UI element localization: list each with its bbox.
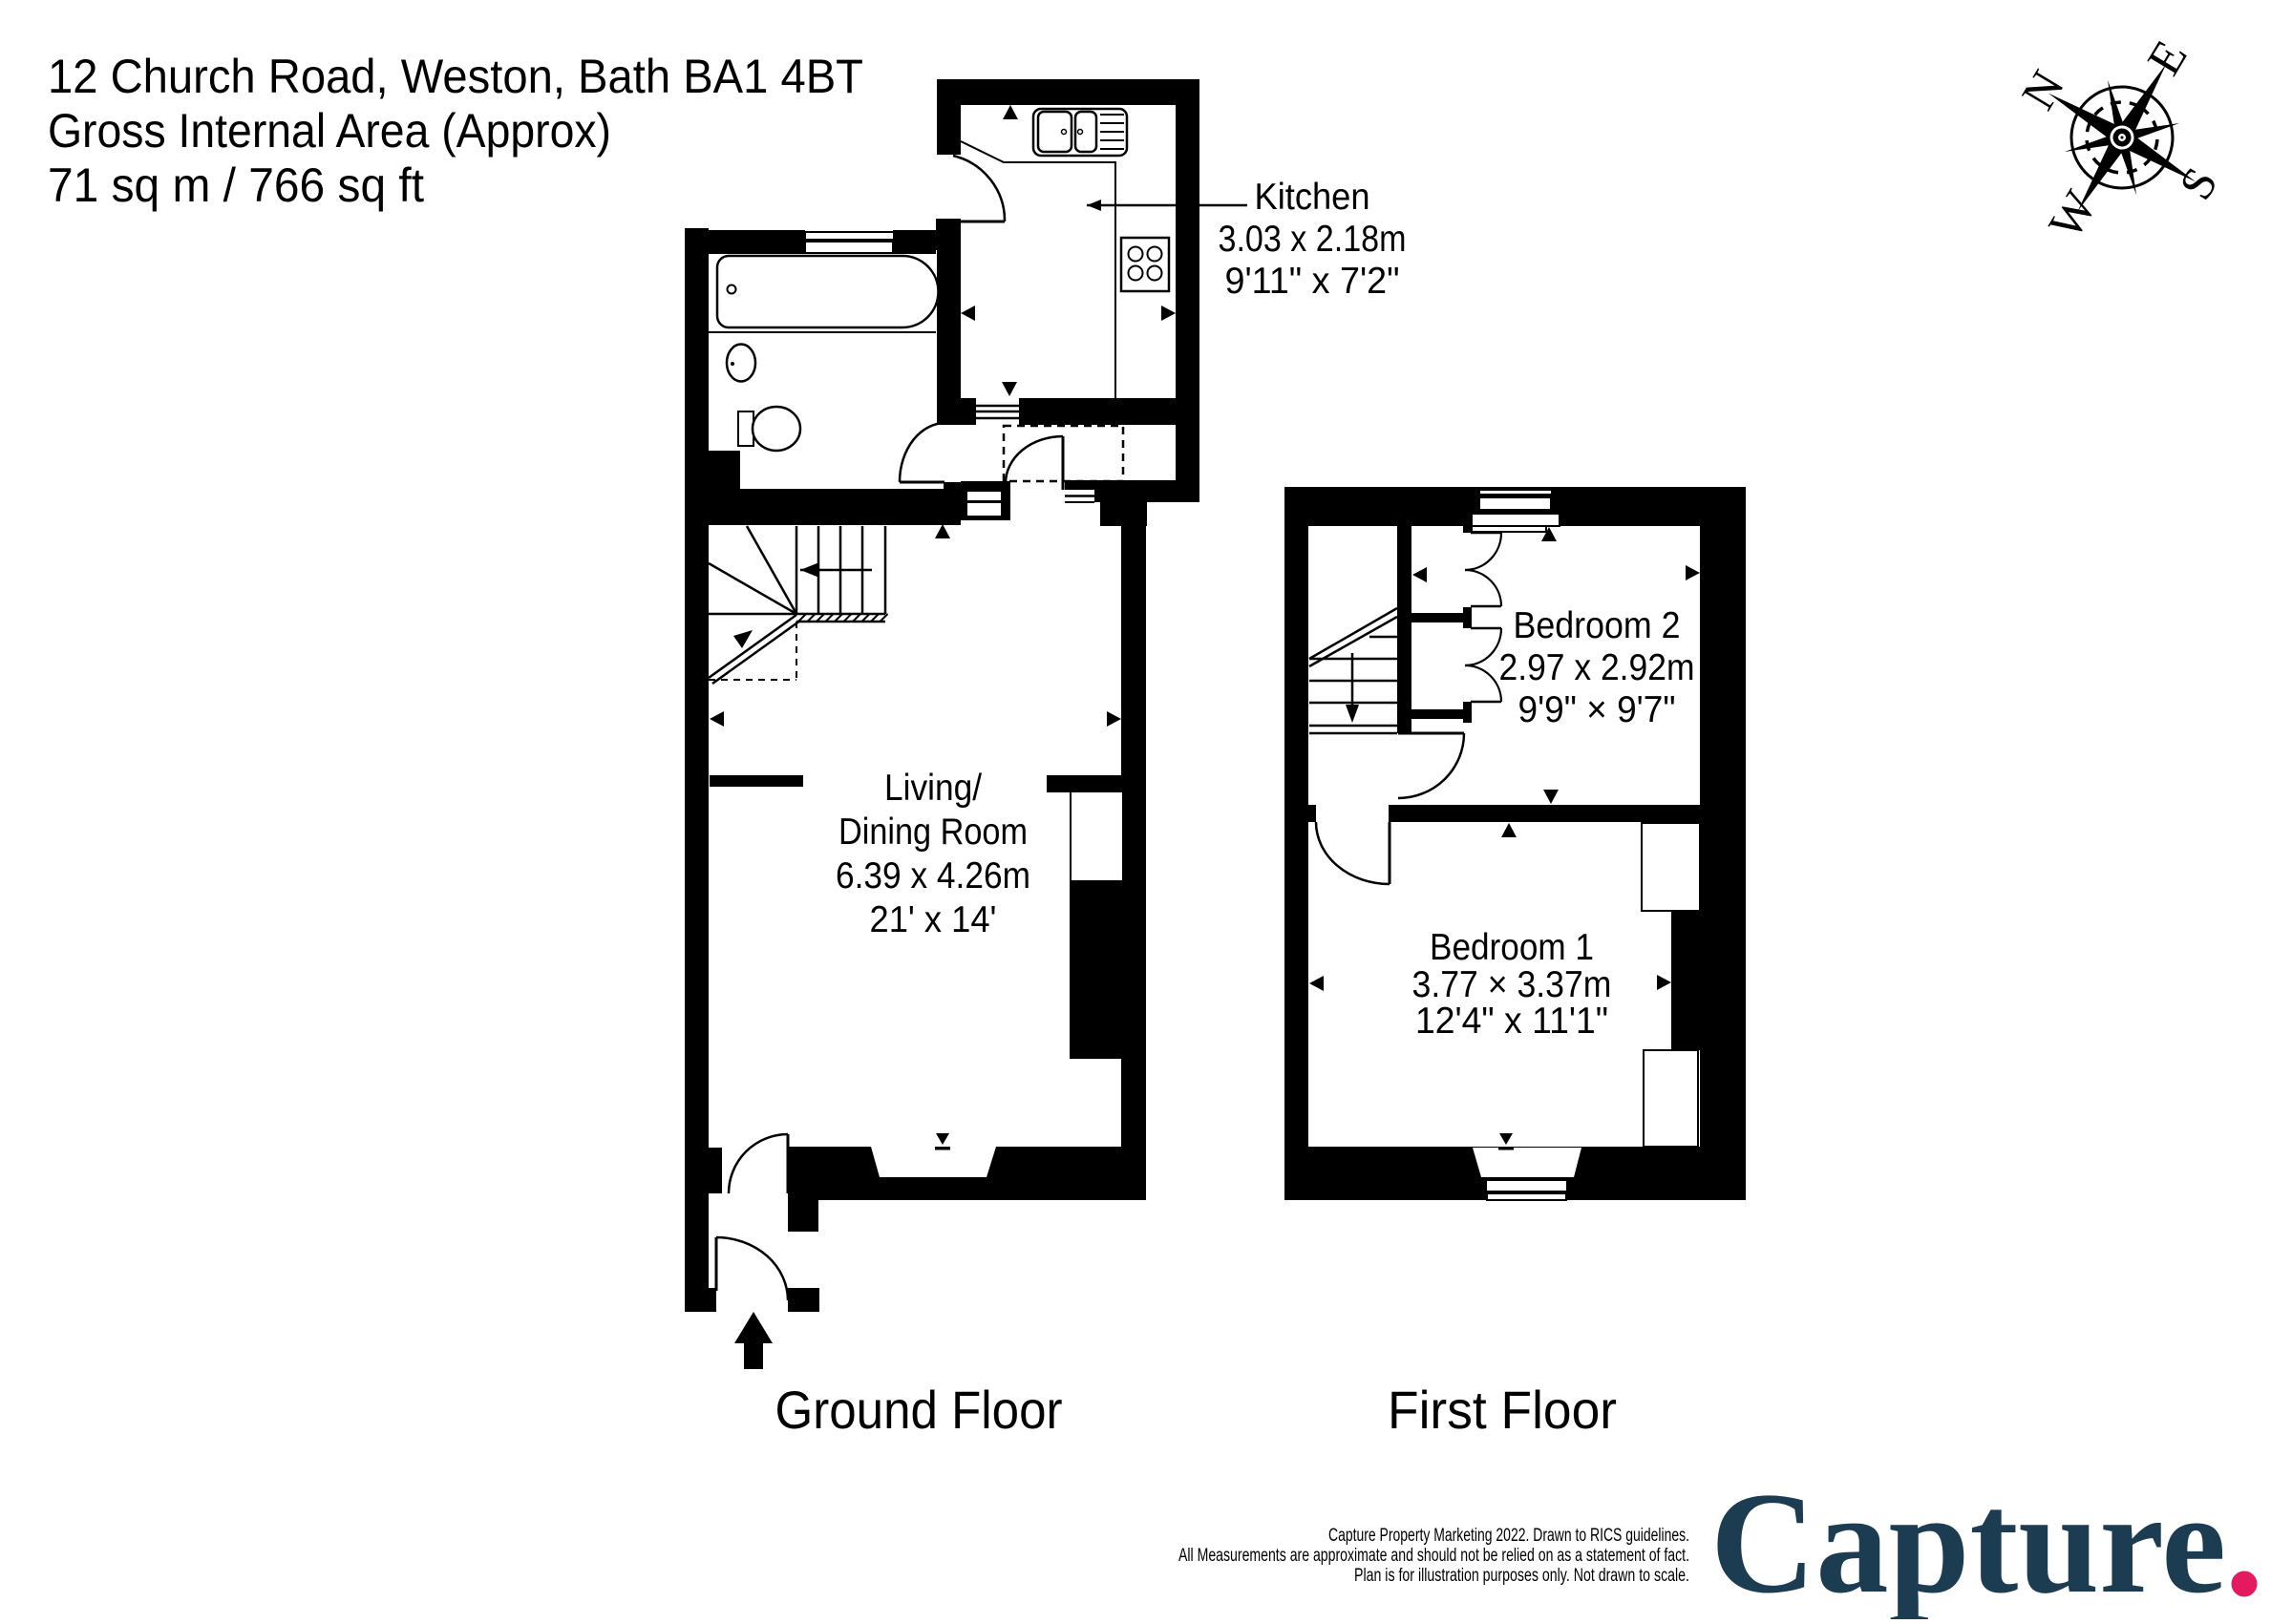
svg-text:Bedroom 1: Bedroom 1 — [1430, 927, 1594, 968]
svg-text:9'11" x 7'2": 9'11" x 7'2" — [1225, 261, 1400, 302]
svg-text:9'9" × 9'7": 9'9" × 9'7" — [1518, 689, 1676, 730]
svg-text:12 Church Road, Weston, Bath B: 12 Church Road, Weston, Bath BA1 4BT — [48, 50, 863, 103]
svg-text:Plan is for illustration purpo: Plan is for illustration purposes only. … — [1354, 1566, 1689, 1586]
svg-text:Capture Property Marketing 202: Capture Property Marketing 2022. Drawn t… — [1328, 1526, 1689, 1546]
svg-text:21' x 14': 21' x 14' — [870, 899, 997, 940]
svg-text:6.39 x 4.26m: 6.39 x 4.26m — [836, 855, 1030, 896]
svg-text:All Measurements are approxima: All Measurements are approximate and sho… — [1178, 1546, 1689, 1566]
svg-text:12'4" x 11'1": 12'4" x 11'1" — [1415, 1001, 1608, 1042]
svg-text:Kitchen: Kitchen — [1255, 177, 1370, 218]
svg-text:Living/: Living/ — [884, 768, 982, 809]
svg-text:Dining Room: Dining Room — [838, 812, 1028, 853]
svg-text:3.03 x 2.18m: 3.03 x 2.18m — [1219, 219, 1407, 260]
svg-text:Ground Floor: Ground Floor — [775, 1380, 1063, 1440]
svg-text:First Floor: First Floor — [1388, 1380, 1617, 1440]
svg-text:2.97 x 2.92m: 2.97 x 2.92m — [1499, 647, 1695, 688]
svg-text:3.77 × 3.37m: 3.77 × 3.37m — [1412, 964, 1612, 1005]
svg-text:Bedroom 2: Bedroom 2 — [1514, 605, 1681, 646]
svg-text:Gross Internal Area (Approx): Gross Internal Area (Approx) — [48, 104, 611, 158]
svg-text:Capture: Capture — [1710, 1463, 2226, 1619]
svg-text:71 sq m / 766 sq ft: 71 sq m / 766 sq ft — [48, 158, 424, 212]
